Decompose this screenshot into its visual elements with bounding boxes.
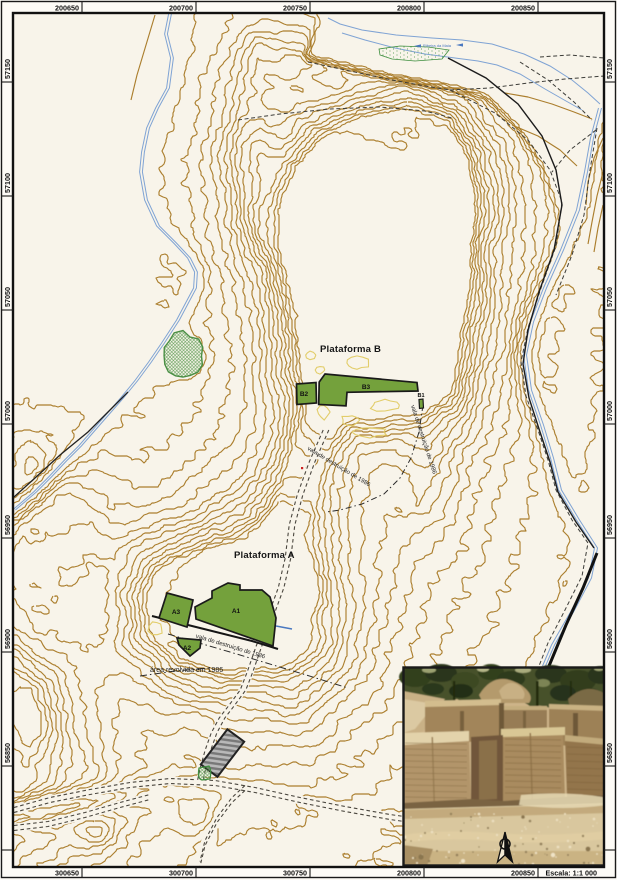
svg-text:B2: B2	[300, 391, 309, 398]
svg-text:57100: 57100	[605, 173, 614, 193]
svg-text:200850: 200850	[511, 4, 535, 13]
svg-text:57000: 57000	[605, 401, 614, 421]
svg-text:A1: A1	[232, 608, 241, 615]
svg-text:56850: 56850	[605, 743, 614, 763]
svg-text:Escala: 1:1 000: Escala: 1:1 000	[545, 869, 597, 878]
svg-text:Plataforma B: Plataforma B	[320, 344, 381, 355]
svg-text:B1: B1	[417, 393, 424, 399]
svg-text:A2: A2	[183, 645, 192, 652]
svg-text:57150: 57150	[3, 59, 12, 79]
svg-text:B3: B3	[362, 384, 371, 391]
svg-text:57000: 57000	[3, 401, 12, 421]
svg-text:200700: 200700	[169, 4, 193, 13]
svg-text:56850: 56850	[3, 743, 12, 763]
svg-text:200800: 200800	[397, 869, 421, 878]
svg-text:200800: 200800	[397, 4, 421, 13]
svg-text:56900: 56900	[3, 629, 12, 649]
svg-text:200750: 200750	[283, 4, 307, 13]
svg-text:57150: 57150	[605, 59, 614, 79]
svg-text:57050: 57050	[3, 287, 12, 307]
svg-text:200850: 200850	[511, 869, 535, 878]
svg-text:300750: 300750	[283, 869, 307, 878]
svg-text:56900: 56900	[605, 629, 614, 649]
svg-text:57100: 57100	[3, 173, 12, 193]
svg-text:Ribeira da Maia: Ribeira da Maia	[423, 43, 452, 48]
svg-text:56950: 56950	[3, 515, 12, 535]
svg-text:56950: 56950	[605, 515, 614, 535]
svg-text:área revolvida em 1986: área revolvida em 1986	[150, 667, 223, 674]
svg-text:57050: 57050	[605, 287, 614, 307]
svg-text:300650: 300650	[55, 869, 79, 878]
svg-text:Plataforma A: Plataforma A	[234, 550, 295, 561]
svg-text:A3: A3	[172, 609, 181, 616]
svg-text:300700: 300700	[169, 869, 193, 878]
svg-text:200650: 200650	[55, 4, 79, 13]
